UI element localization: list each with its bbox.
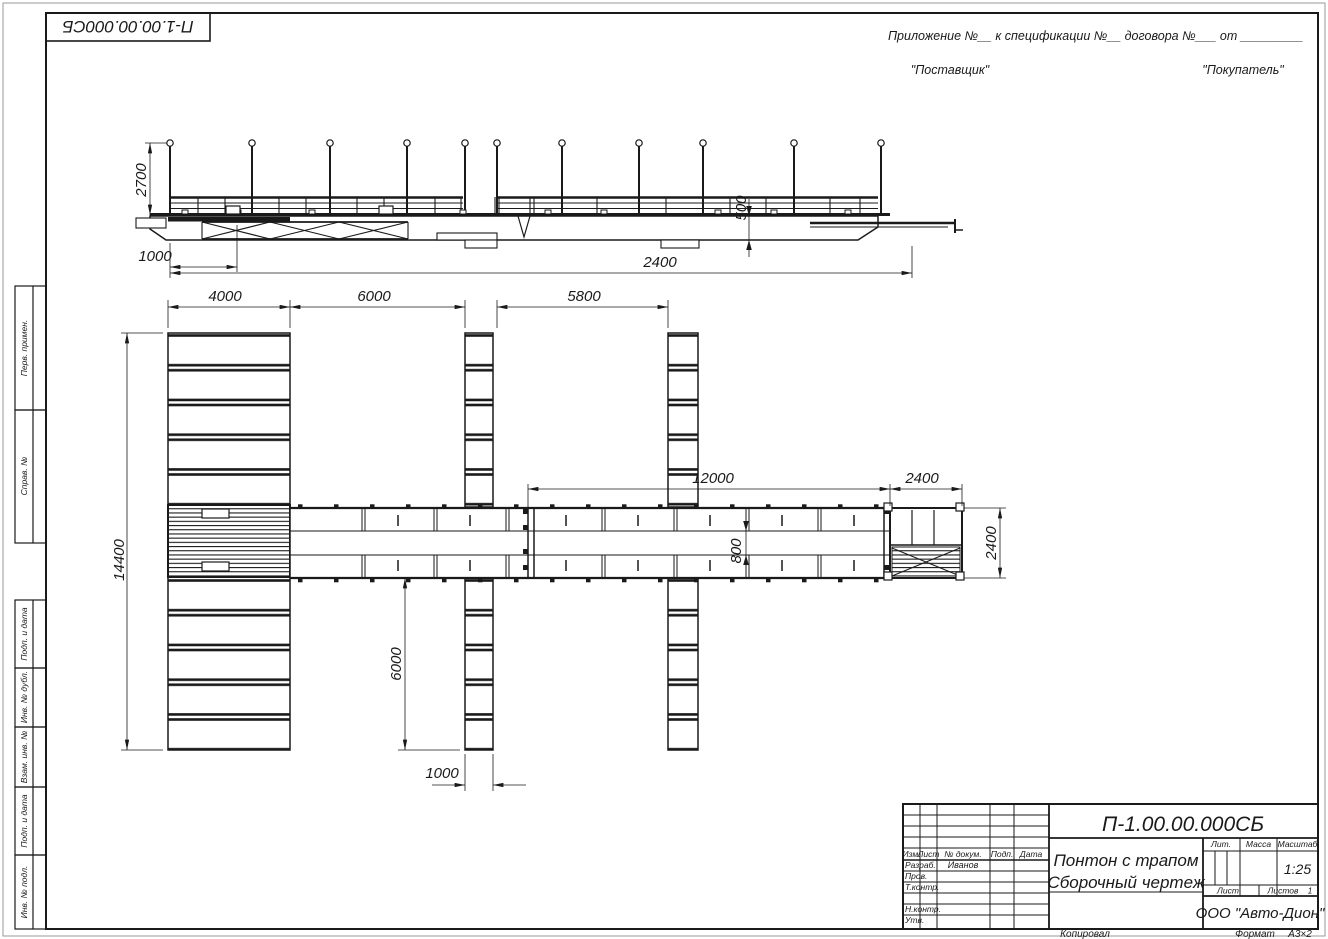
finger-bottom-2 [668,578,698,750]
drawing-title-line1: Понтон с трапом [1053,851,1198,870]
elevation-view [136,140,963,248]
doc-number: П-1.00.00.000СБ [1102,813,1264,836]
dim-platform-width: 2400 [904,470,939,487]
margin-label-inv-podl: Инв. № подл. [19,866,29,919]
margin-label-podp-data-2: Подп. и дата [19,794,29,847]
row-prov: Пров. [905,871,927,881]
boarding-platform [884,503,964,580]
dim-ramp-offset: 1000 [138,248,172,265]
dim-pole-height: 2700 [133,163,150,198]
col-doc: № докум. [944,849,981,859]
main-walkway [290,504,890,583]
col-list: Лист [917,849,940,859]
label-massa: Масса [1246,839,1271,849]
left-pontoon-top [168,333,290,505]
dim-pontoon-length: 14400 [111,538,128,580]
finger-bottom-1 [465,578,493,750]
dim-bay-gap-1: 6000 [357,288,391,305]
appendix-note: Приложение №__ к спецификации №__ догово… [888,29,1303,77]
label-masshtab: Масштаб [1278,839,1319,849]
mooring-poles [167,140,884,215]
row-razrab: Разраб. [905,860,936,870]
margin-label-perv-primen: Перв. примен. [19,320,29,377]
company-name: ООО "Авто-Дион" [1196,905,1325,922]
finger-top-1 [465,333,493,507]
dim-walkway-length: 12000 [692,470,734,487]
margin-label-sprav-no: Справ. № [19,457,29,496]
title-block-text: П-1.00.00.000СБ Понтон с трапом Сборочны… [902,813,1325,925]
left-pontoon-bottom [168,577,290,750]
scale-value: 1:25 [1284,861,1311,877]
row-nkontr: Н.контр. [905,904,941,914]
label-list2: Лист [1216,886,1239,896]
col-data: Дата [1019,849,1043,859]
corner-doc-number: П-1.00.00.000СБ [62,17,193,36]
listov-value: 1 [1308,886,1313,896]
elevation-dimensions [145,143,912,278]
plan-view [168,333,964,750]
sheet-footer: Копировал Формат А3×2 [1060,929,1312,939]
drawing-canvas: П-1.00.00.000СБ Перв. примен. Справ. № П… [0,0,1328,939]
margin-label-vzam-inv: Взам. инв. № [19,731,29,784]
dim-overall-length: 2400 [642,254,677,271]
drawing-sheet: П-1.00.00.000СБ Перв. примен. Справ. № П… [0,0,1328,939]
dim-hull-depth: 500 [733,195,750,221]
dim-walkway-gap: 800 [728,538,745,564]
margin-label-inv-dubl: Инв. № дубл. [19,671,29,723]
format-value: А3×2 [1287,929,1312,939]
dim-pontoon-width: 4000 [208,288,242,305]
buyer-label: "Покупатель" [1202,63,1284,77]
ramp-edge-side [168,217,290,222]
label-lit: Лит. [1210,839,1231,849]
dim-bay-gap-2: 5800 [567,288,601,305]
margin-label-podp-data-1: Подп. и дата [19,607,29,660]
supplier-label: "Поставщик" [911,63,990,77]
drawing-title-line2: Сборочный чертеж [1047,873,1205,892]
dim-platform-height: 2400 [983,526,1000,561]
dim-finger-length: 6000 [388,647,405,681]
row-tkontr: Т.контр. [905,882,939,892]
format-label: Формат [1235,929,1275,939]
appendix-line: Приложение №__ к спецификации №__ догово… [888,29,1303,43]
dim-finger-width: 1000 [425,765,459,782]
label-listov: Листов [1267,886,1300,896]
row-utv: Утв. [904,915,924,925]
copied-label: Копировал [1060,929,1110,939]
col-podp: Подп. [991,849,1014,859]
razrab-name: Иванов [948,860,979,870]
